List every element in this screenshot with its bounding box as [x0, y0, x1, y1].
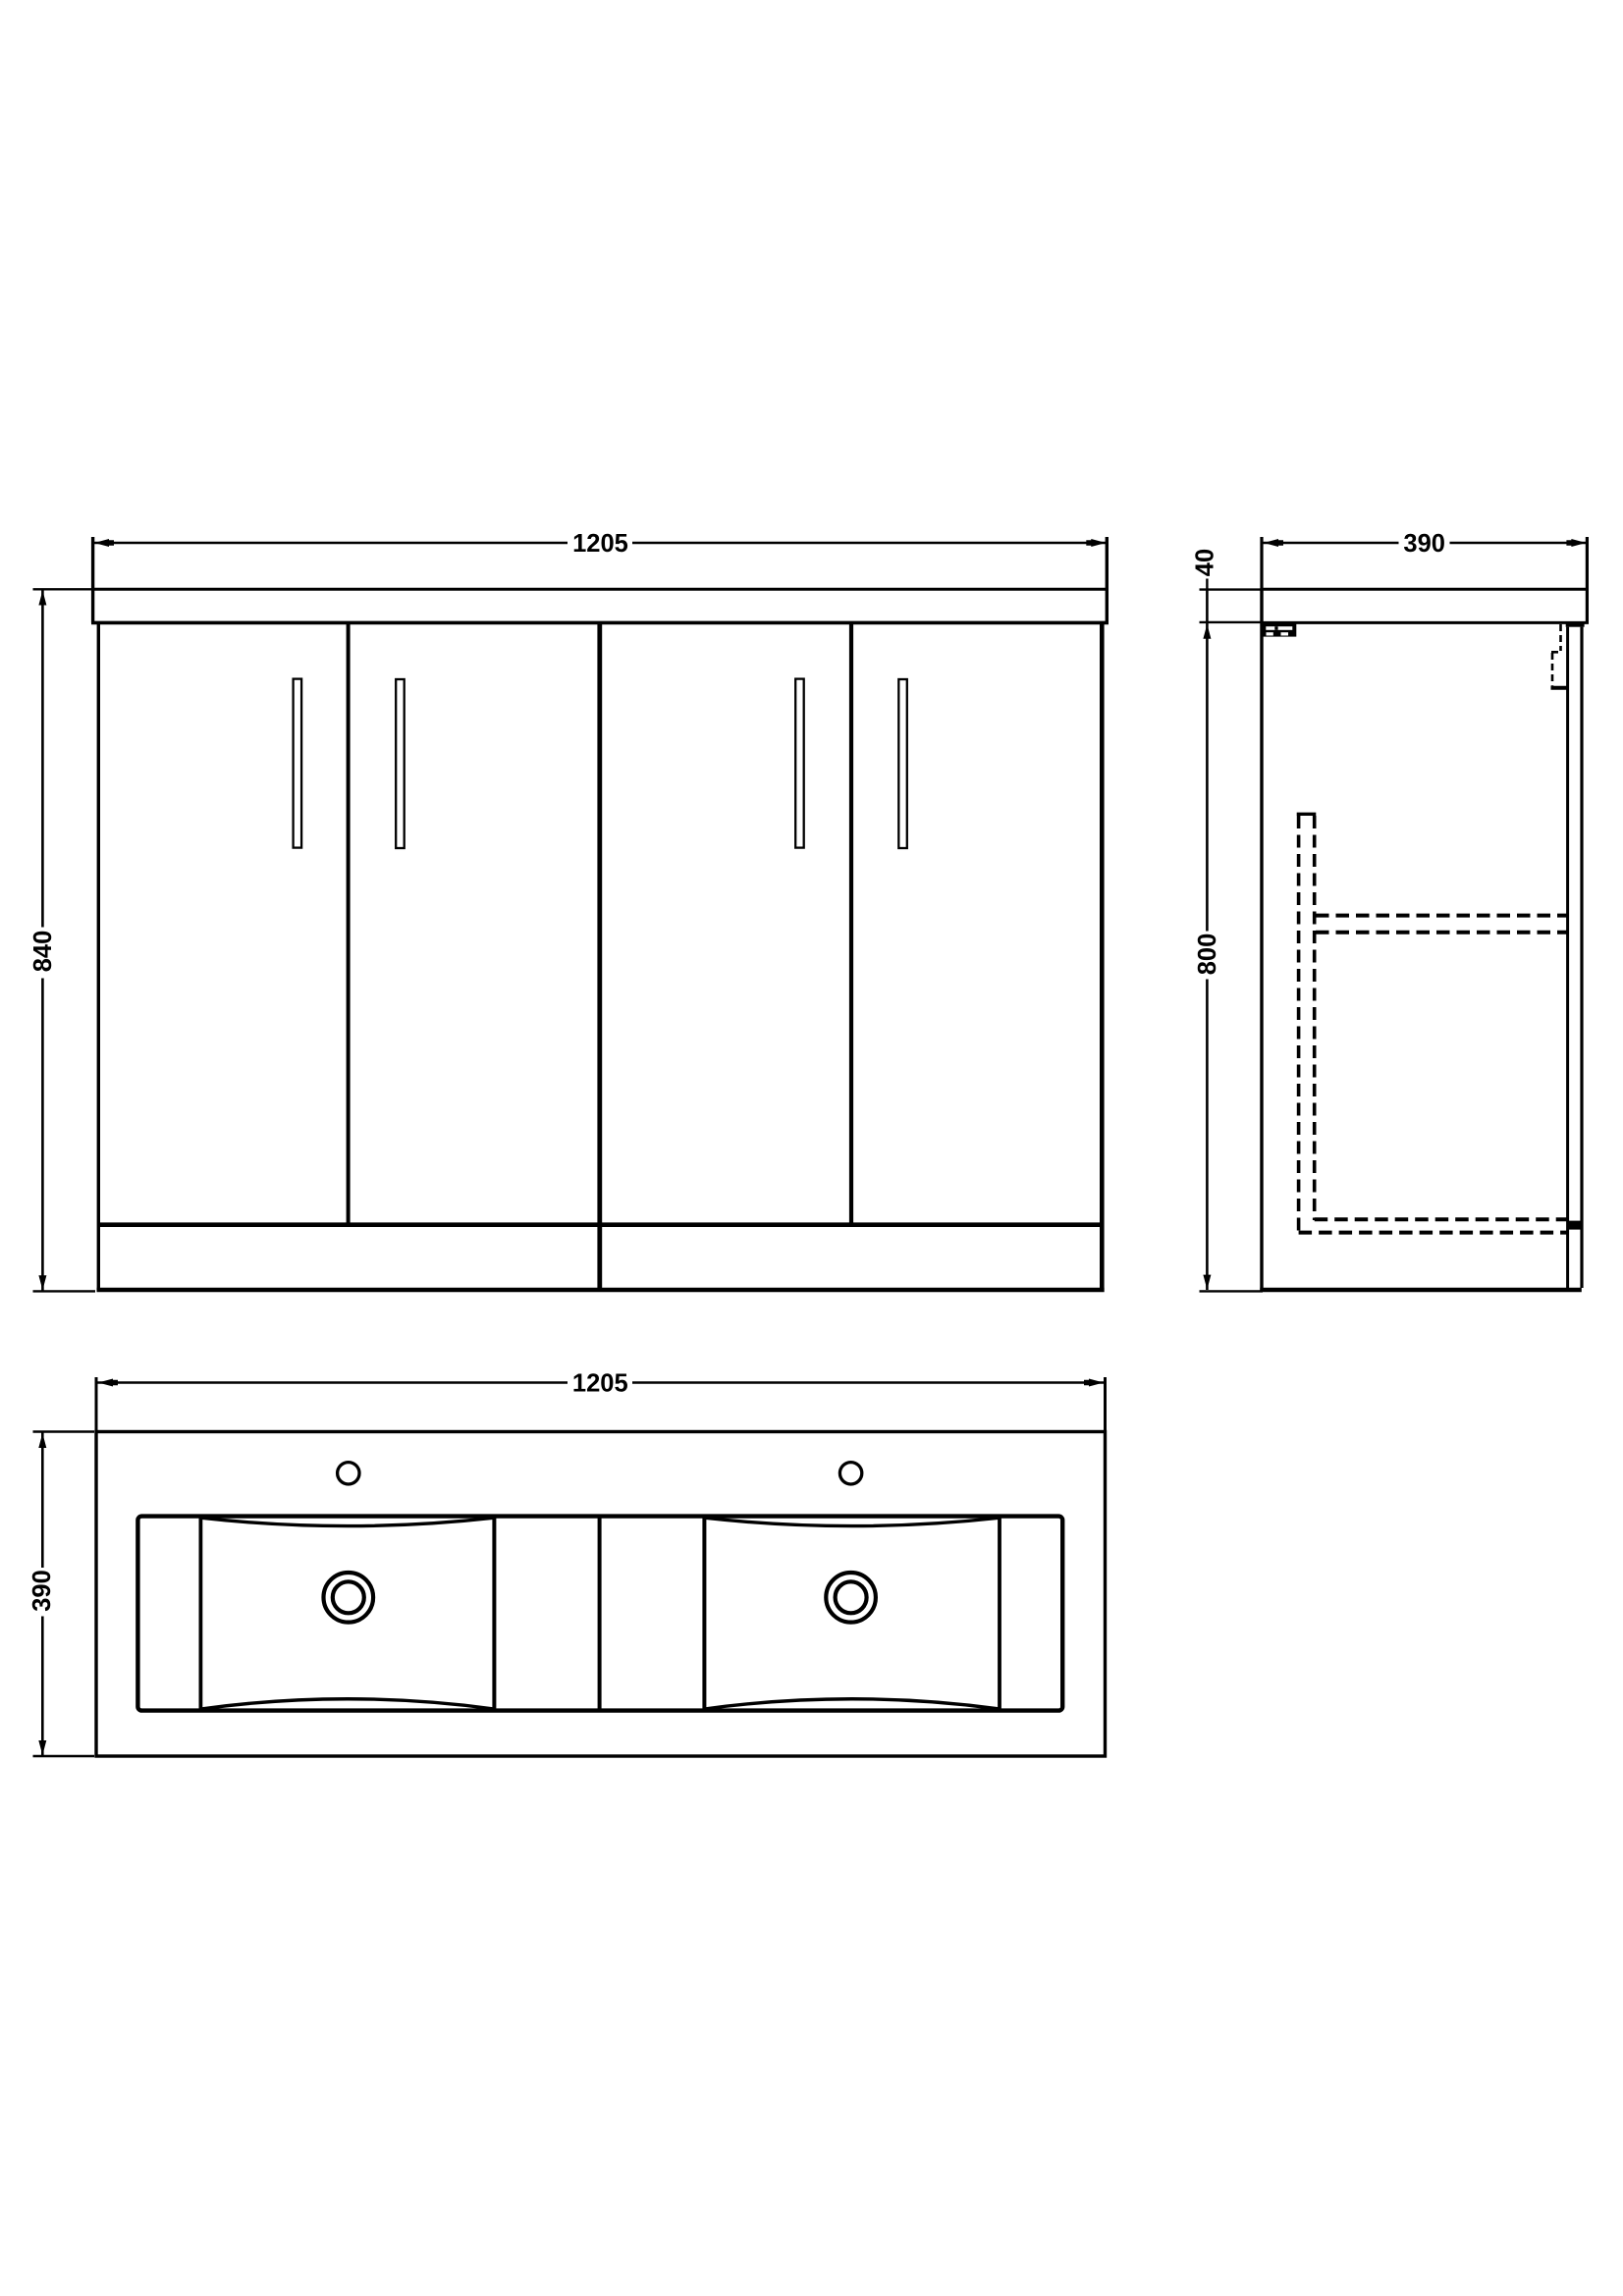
svg-text:40: 40 — [1192, 549, 1219, 576]
svg-text:840: 840 — [29, 931, 57, 973]
svg-text:1205: 1205 — [572, 530, 628, 558]
svg-text:1205: 1205 — [572, 1369, 628, 1397]
svg-text:390: 390 — [28, 1570, 56, 1612]
svg-text:390: 390 — [1403, 530, 1445, 558]
svg-text:800: 800 — [1194, 934, 1221, 976]
